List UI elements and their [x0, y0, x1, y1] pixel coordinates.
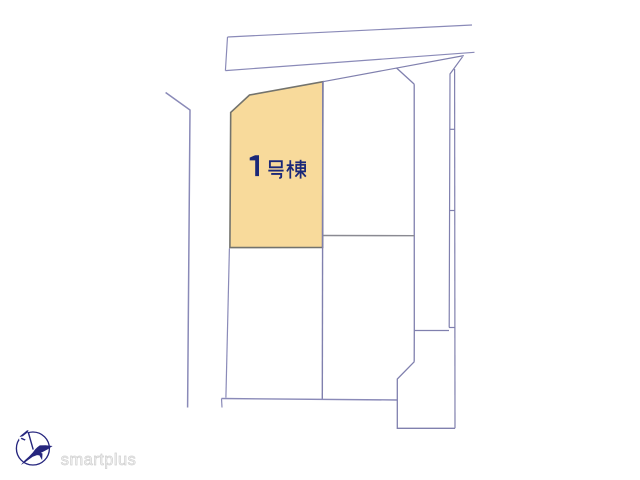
svg-text:smartplus: smartplus: [61, 451, 137, 469]
